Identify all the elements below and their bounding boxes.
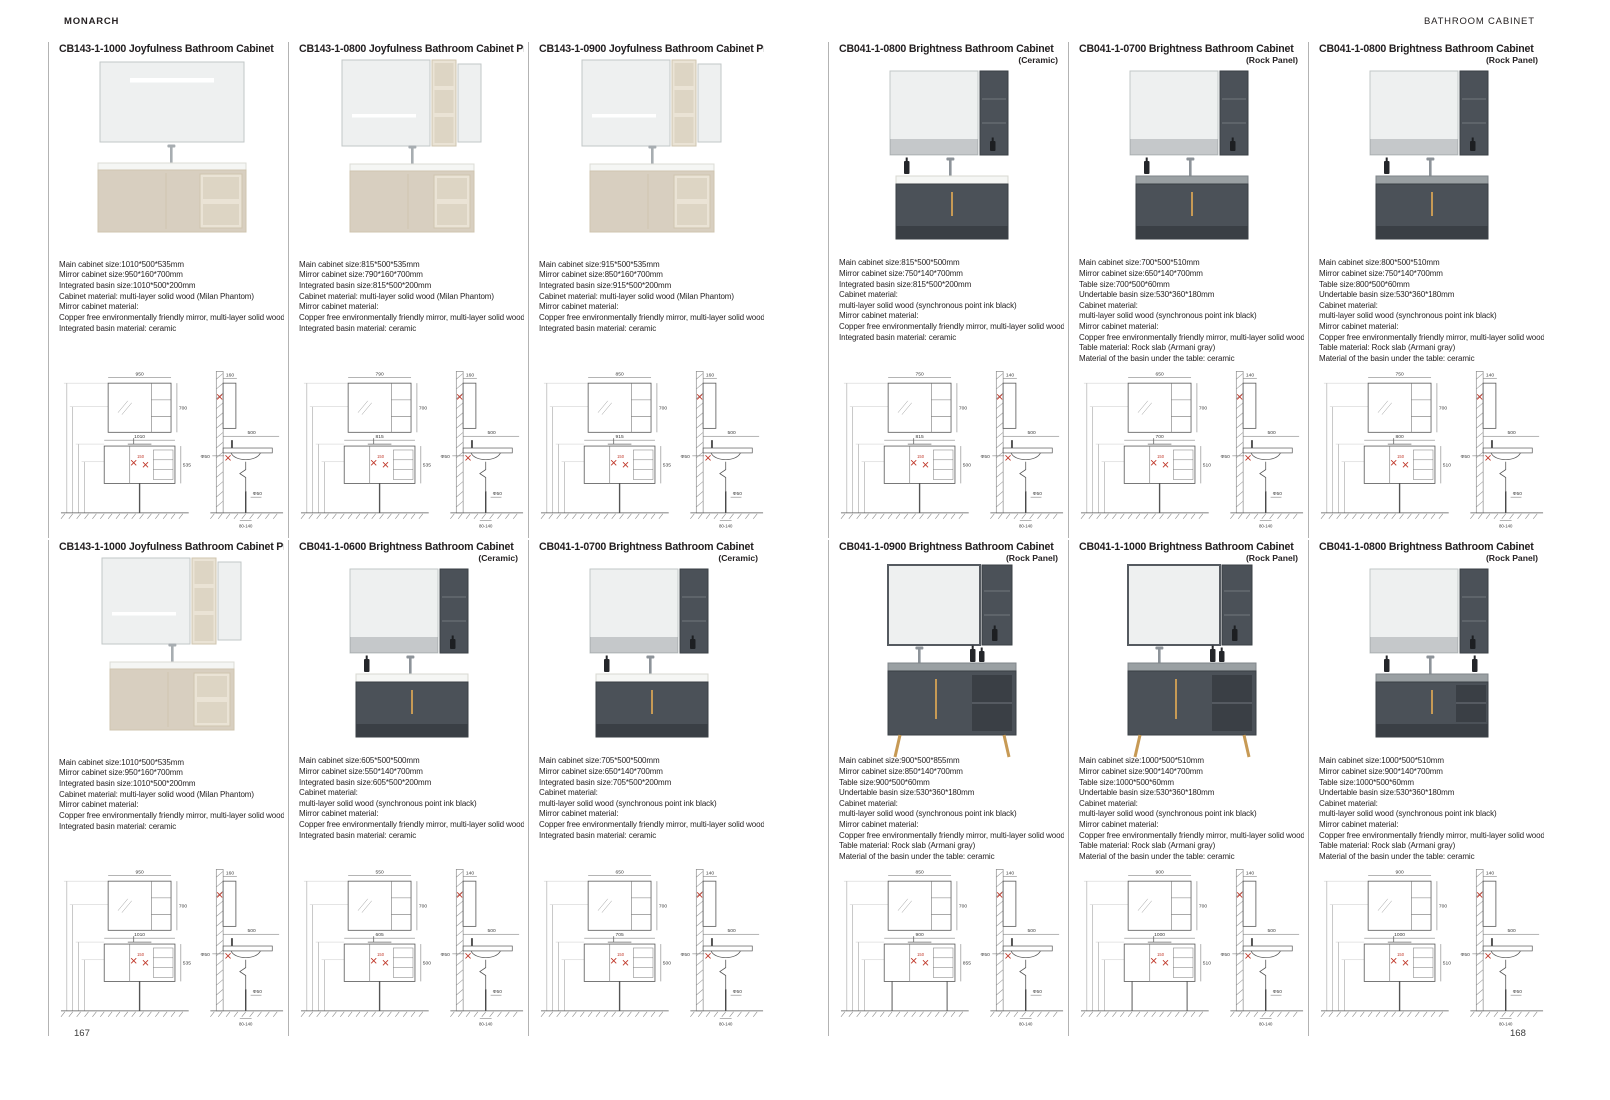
svg-text:500: 500: [728, 928, 736, 934]
svg-text:Φ50: Φ50: [1461, 454, 1471, 460]
spec-line: Main cabinet size:1000*500*510mm: [1319, 756, 1544, 767]
spec-line: Mirror cabinet size:790*160*700mm: [299, 270, 524, 281]
product-photo: [539, 56, 764, 260]
spec-line: Cabinet material:: [1319, 301, 1544, 312]
spec-line: Mirror cabinet size:650*140*700mm: [539, 767, 764, 778]
dimension-drawing: 900 700 1000 510 150 140 500: [1319, 864, 1547, 1030]
svg-text:510: 510: [1443, 463, 1451, 469]
product-card: CB041-1-0700 Brightness Bathroom Cabinet…: [528, 540, 767, 1036]
svg-text:800: 800: [1395, 434, 1403, 440]
product-photo-illustration: [72, 554, 272, 752]
spec-line: Integrated basin size:815*500*200mm: [839, 280, 1064, 291]
svg-text:500: 500: [248, 430, 256, 436]
svg-text:700: 700: [959, 904, 967, 910]
spec-line: Mirror cabinet material:: [839, 820, 1064, 831]
spec-line: multi-layer solid wood (synchronous poin…: [1079, 809, 1304, 820]
spec-line: Mirror cabinet size:650*140*700mm: [1079, 269, 1304, 280]
product-photo-illustration: [552, 563, 752, 761]
product-specs: Main cabinet size:700*500*510mmMirror ca…: [1079, 258, 1304, 364]
technical-drawing: 650 700 700 510 150 140 500: [1079, 366, 1304, 538]
svg-text:700: 700: [179, 904, 187, 910]
svg-text:Φ50: Φ50: [441, 454, 451, 460]
svg-text:790: 790: [375, 371, 383, 377]
spec-line: Cabinet material:: [539, 788, 764, 799]
spec-line: multi-layer solid wood (synchronous poin…: [839, 301, 1064, 312]
product-card: CB041-1-0900 Brightness Bathroom Cabinet…: [828, 540, 1067, 1036]
product-card: CB143-1-1000 Joyfulness Bathroom Cabinet…: [48, 42, 287, 538]
spec-line: Main cabinet size:1010*500*535mm: [59, 260, 284, 271]
svg-text:140: 140: [1006, 870, 1014, 876]
spec-line: Main cabinet size:1010*500*535mm: [59, 758, 284, 769]
svg-text:700: 700: [959, 406, 967, 412]
svg-text:500: 500: [1028, 928, 1036, 934]
dimension-drawing: 950 700 1010 535 150 160 500: [59, 366, 287, 532]
spec-line: Table size:900*500*60mm: [839, 778, 1064, 789]
svg-text:535: 535: [663, 463, 671, 469]
svg-text:510: 510: [1203, 463, 1211, 469]
technical-drawing: 750 700 800 510 150 140 500: [1319, 366, 1544, 538]
dimension-drawing: 750 700 800 510 150 140 500: [1319, 366, 1547, 532]
svg-text:650: 650: [1155, 371, 1163, 377]
product-specs: Main cabinet size:1010*500*535mmMirror c…: [59, 758, 284, 832]
product-specs: Main cabinet size:705*500*500mmMirror ca…: [539, 756, 764, 841]
svg-text:150: 150: [137, 454, 145, 459]
product-specs: Main cabinet size:800*500*510mmMirror ca…: [1319, 258, 1544, 364]
spec-line: multi-layer solid wood (synchronous poin…: [1319, 311, 1544, 322]
spec-line: Mirror cabinet material:: [59, 800, 284, 811]
spec-line: Table material: Rock slab (Armani gray): [1079, 343, 1304, 354]
spec-line: Integrated basin material: ceramic: [539, 831, 764, 842]
product-variant: (Rock Panel): [839, 554, 1064, 563]
svg-text:Φ50: Φ50: [493, 989, 503, 995]
spec-line: Integrated basin material: ceramic: [839, 333, 1064, 344]
svg-text:80-140: 80-140: [479, 524, 493, 529]
spec-line: Mirror cabinet material:: [1079, 820, 1304, 831]
spec-line: Copper free environmentally friendly mir…: [1319, 831, 1544, 842]
product-variant: (Rock Panel): [1079, 56, 1304, 65]
svg-text:700: 700: [1439, 406, 1447, 412]
product-card: CB041-1-0800 Brightness Bathroom Cabinet…: [828, 42, 1067, 538]
product-photo-illustration: [852, 65, 1052, 263]
svg-text:500: 500: [963, 463, 971, 469]
product-variant: (Ceramic): [839, 56, 1064, 65]
spec-line: Copper free environmentally friendly mir…: [299, 820, 524, 831]
dimension-drawing: 790 700 815 535 150 160 500: [299, 366, 527, 532]
dimension-drawing: 650 700 705 500 150 140 500: [539, 864, 767, 1030]
spec-line: Undertable basin size:530*360*180mm: [1079, 788, 1304, 799]
product-card: CB143-1-1000 Joyfulness Bathroom Cabinet…: [48, 540, 287, 1036]
svg-text:815: 815: [915, 434, 923, 440]
svg-text:Φ50: Φ50: [1513, 491, 1523, 497]
spec-line: Mirror cabinet size:950*160*700mm: [59, 270, 284, 281]
spec-line: Integrated basin material: ceramic: [299, 324, 524, 335]
technical-drawing: 850 700 915 535 150 160 500: [539, 366, 764, 538]
spec-line: Copper free environmentally friendly mir…: [539, 820, 764, 831]
svg-text:Φ50: Φ50: [1033, 989, 1043, 995]
spec-line: Integrated basin material: ceramic: [299, 831, 524, 842]
spec-line: Integrated basin material: ceramic: [59, 822, 284, 833]
svg-text:Φ50: Φ50: [201, 952, 211, 958]
spec-line: Undertable basin size:530*360*180mm: [839, 788, 1064, 799]
product-photo: [839, 65, 1064, 258]
product-card: CB041-1-0800 Brightness Bathroom Cabinet…: [1308, 540, 1547, 1036]
svg-text:Φ50: Φ50: [1033, 491, 1043, 497]
technical-drawing: 950 700 1010 535 150 160 500: [59, 366, 284, 538]
product-card: CB143-1-0800 Joyfulness Bathroom Cabinet…: [288, 42, 527, 538]
spec-line: Material of the basin under the table: c…: [1319, 852, 1544, 863]
spec-line: Table material: Rock slab (Armani gray): [839, 841, 1064, 852]
technical-drawing: 650 700 705 500 150 140 500: [539, 864, 764, 1036]
product-photo-illustration: [552, 56, 752, 254]
svg-text:Φ50: Φ50: [1461, 952, 1471, 958]
svg-text:900: 900: [1155, 869, 1163, 875]
svg-text:815: 815: [375, 434, 383, 440]
product-variant: (Rock Panel): [1319, 554, 1544, 563]
svg-text:Φ50: Φ50: [1513, 989, 1523, 995]
spec-line: Cabinet material:: [1079, 301, 1304, 312]
svg-text:140: 140: [1006, 372, 1014, 378]
spec-line: multi-layer solid wood (synchronous poin…: [299, 799, 524, 810]
svg-text:80-140: 80-140: [719, 524, 733, 529]
svg-text:700: 700: [179, 406, 187, 412]
svg-text:850: 850: [915, 869, 923, 875]
spec-line: Main cabinet size:700*500*510mm: [1079, 258, 1304, 269]
spec-line: Main cabinet size:705*500*500mm: [539, 756, 764, 767]
svg-text:150: 150: [1157, 952, 1165, 957]
spec-line: Copper free environmentally friendly mir…: [59, 313, 284, 324]
spec-line: Copper free environmentally friendly mir…: [839, 831, 1064, 842]
spec-line: multi-layer solid wood (synchronous poin…: [539, 799, 764, 810]
spec-line: Mirror cabinet material:: [299, 809, 524, 820]
svg-text:500: 500: [1508, 430, 1516, 436]
spec-line: Cabinet material: multi-layer solid wood…: [299, 292, 524, 303]
svg-text:650: 650: [615, 869, 623, 875]
product-specs: Main cabinet size:1010*500*535mmMirror c…: [59, 260, 284, 334]
svg-text:Φ50: Φ50: [1273, 989, 1283, 995]
spec-line: Integrated basin size:1010*500*200mm: [59, 281, 284, 292]
product-specs: Main cabinet size:815*500*500mmMirror ca…: [839, 258, 1064, 343]
svg-text:80-140: 80-140: [239, 1022, 253, 1027]
svg-text:150: 150: [377, 952, 385, 957]
product-photo: [1319, 65, 1544, 258]
product-variant: (Rock Panel): [1319, 56, 1544, 65]
product-photo: [1079, 563, 1304, 756]
product-photo: [1079, 65, 1304, 258]
spec-line: Main cabinet size:915*500*535mm: [539, 260, 764, 271]
spec-line: Material of the basin under the table: c…: [1079, 354, 1304, 365]
svg-text:700: 700: [659, 406, 667, 412]
spec-line: Copper free environmentally friendly mir…: [1319, 333, 1544, 344]
spec-line: Mirror cabinet material:: [1319, 820, 1544, 831]
spec-line: Mirror cabinet size:950*160*700mm: [59, 768, 284, 779]
product-photo-illustration: [312, 56, 512, 254]
spec-line: Cabinet material:: [299, 788, 524, 799]
svg-text:550: 550: [375, 869, 383, 875]
svg-text:Φ50: Φ50: [681, 952, 691, 958]
product-specs: Main cabinet size:915*500*535mmMirror ca…: [539, 260, 764, 334]
spec-line: Cabinet material:: [839, 290, 1064, 301]
product-photo: [299, 563, 524, 756]
spec-line: Main cabinet size:815*500*500mm: [839, 258, 1064, 269]
svg-text:140: 140: [466, 870, 474, 876]
brand-title: MONARCH: [64, 16, 119, 27]
product-photo: [59, 56, 284, 260]
product-title: CB143-1-0900 Joyfulness Bathroom Cabinet…: [539, 44, 764, 56]
svg-text:Φ50: Φ50: [253, 989, 263, 995]
spec-line: Cabinet material:: [839, 799, 1064, 810]
dimension-drawing: 650 700 700 510 150 140 500: [1079, 366, 1307, 532]
svg-text:80-140: 80-140: [239, 524, 253, 529]
product-specs: Main cabinet size:1000*500*510mmMirror c…: [1079, 756, 1304, 862]
dimension-drawing: 750 700 815 500 150 140 500: [839, 366, 1067, 532]
svg-text:500: 500: [1268, 430, 1276, 436]
svg-text:700: 700: [1155, 434, 1163, 440]
spec-line: multi-layer solid wood (synchronous poin…: [1319, 809, 1544, 820]
product-photo-illustration: [1332, 65, 1532, 263]
svg-text:150: 150: [137, 952, 145, 957]
svg-text:150: 150: [1157, 454, 1165, 459]
product-card: CB041-1-0600 Brightness Bathroom Cabinet…: [288, 540, 527, 1036]
svg-text:510: 510: [1203, 961, 1211, 967]
technical-drawing: 550 700 605 500 150 140 500: [299, 864, 524, 1036]
svg-text:140: 140: [1246, 372, 1254, 378]
product-title: CB143-1-0800 Joyfulness Bathroom Cabinet…: [299, 44, 524, 56]
product-variant: (Ceramic): [539, 554, 764, 563]
spec-line: Mirror cabinet size:750*140*700mm: [1319, 269, 1544, 280]
spec-line: Copper free environmentally friendly mir…: [59, 811, 284, 822]
spec-line: Undertable basin size:530*360*180mm: [1319, 290, 1544, 301]
svg-text:Φ50: Φ50: [681, 454, 691, 460]
svg-text:150: 150: [377, 454, 385, 459]
svg-text:80-140: 80-140: [1499, 524, 1513, 529]
svg-text:915: 915: [615, 434, 623, 440]
spec-line: Material of the basin under the table: c…: [839, 852, 1064, 863]
spec-line: Mirror cabinet material:: [59, 302, 284, 313]
spec-line: Table size:800*500*60mm: [1319, 280, 1544, 291]
spec-line: Mirror cabinet material:: [839, 311, 1064, 322]
product-photo-illustration: [852, 563, 1052, 761]
product-photo-illustration: [1092, 65, 1292, 263]
svg-text:500: 500: [728, 430, 736, 436]
svg-text:500: 500: [423, 961, 431, 967]
product-card: CB041-1-1000 Brightness Bathroom Cabinet…: [1068, 540, 1307, 1036]
spec-line: Undertable basin size:530*360*180mm: [1319, 788, 1544, 799]
spec-line: Material of the basin under the table: c…: [1079, 852, 1304, 863]
spec-line: Undertable basin size:530*360*180mm: [1079, 290, 1304, 301]
spec-line: multi-layer solid wood (synchronous poin…: [1079, 311, 1304, 322]
spec-line: Material of the basin under the table: c…: [1319, 354, 1544, 365]
section-title: BATHROOM CABINET: [1424, 16, 1535, 27]
svg-text:Φ50: Φ50: [1273, 491, 1283, 497]
svg-text:Φ50: Φ50: [733, 491, 743, 497]
product-title: CB143-1-1000 Joyfulness Bathroom Cabinet…: [59, 542, 284, 554]
dimension-drawing: 850 700 900 855 150 140 500: [839, 864, 1067, 1030]
svg-text:700: 700: [419, 904, 427, 910]
spec-line: Integrated basin material: ceramic: [539, 324, 764, 335]
svg-text:950: 950: [135, 371, 143, 377]
product-card: CB143-1-0900 Joyfulness Bathroom Cabinet…: [528, 42, 767, 538]
spec-line: Mirror cabinet size:550*140*700mm: [299, 767, 524, 778]
svg-text:80-140: 80-140: [1259, 524, 1273, 529]
product-specs: Main cabinet size:900*500*855mmMirror ca…: [839, 756, 1064, 862]
spec-line: Mirror cabinet material:: [1319, 322, 1544, 333]
svg-text:80-140: 80-140: [1019, 524, 1033, 529]
spec-line: Main cabinet size:900*500*855mm: [839, 756, 1064, 767]
technical-drawing: 950 700 1010 535 150 160 500: [59, 864, 284, 1036]
svg-text:900: 900: [915, 932, 923, 938]
dimension-drawing: 550 700 605 500 150 140 500: [299, 864, 527, 1030]
svg-text:700: 700: [659, 904, 667, 910]
svg-text:150: 150: [917, 952, 925, 957]
svg-text:950: 950: [135, 869, 143, 875]
product-title: CB143-1-1000 Joyfulness Bathroom Cabinet: [59, 44, 284, 56]
svg-text:160: 160: [706, 372, 714, 378]
svg-text:510: 510: [1443, 961, 1451, 967]
svg-text:160: 160: [226, 372, 234, 378]
svg-text:Φ50: Φ50: [493, 491, 503, 497]
product-variant: (Ceramic): [299, 554, 524, 563]
svg-text:Φ50: Φ50: [981, 454, 991, 460]
svg-text:500: 500: [1268, 928, 1276, 934]
svg-text:535: 535: [183, 463, 191, 469]
spec-line: Main cabinet size:605*500*500mm: [299, 756, 524, 767]
svg-text:80-140: 80-140: [1499, 1022, 1513, 1027]
product-photo: [299, 56, 524, 260]
svg-text:700: 700: [419, 406, 427, 412]
svg-text:Φ50: Φ50: [733, 989, 743, 995]
spec-line: Cabinet material: multi-layer solid wood…: [59, 292, 284, 303]
spec-line: Main cabinet size:815*500*535mm: [299, 260, 524, 271]
spec-line: Mirror cabinet size:900*140*700mm: [1079, 767, 1304, 778]
spec-line: Copper free environmentally friendly mir…: [839, 322, 1064, 333]
spec-line: Mirror cabinet material:: [539, 809, 764, 820]
svg-text:150: 150: [617, 454, 625, 459]
dimension-drawing: 900 700 1000 510 150 140 500: [1079, 864, 1307, 1030]
svg-text:700: 700: [1199, 406, 1207, 412]
svg-text:705: 705: [615, 932, 623, 938]
svg-text:1000: 1000: [1394, 932, 1405, 938]
svg-text:Φ50: Φ50: [441, 952, 451, 958]
spec-line: Copper free environmentally friendly mir…: [1079, 831, 1304, 842]
spec-line: Table size:1000*500*60mm: [1079, 778, 1304, 789]
svg-text:1010: 1010: [134, 932, 145, 938]
spec-line: Main cabinet size:1000*500*510mm: [1079, 756, 1304, 767]
svg-text:700: 700: [1439, 904, 1447, 910]
spec-line: Cabinet material: multi-layer solid wood…: [59, 790, 284, 801]
technical-drawing: 900 700 1000 510 150 140 500: [1079, 864, 1304, 1036]
svg-text:1000: 1000: [1154, 932, 1165, 938]
svg-text:500: 500: [1028, 430, 1036, 436]
spec-line: Mirror cabinet size:850*160*700mm: [539, 270, 764, 281]
spec-line: Mirror cabinet material:: [299, 302, 524, 313]
spec-line: Integrated basin size:605*500*200mm: [299, 778, 524, 789]
product-card: CB041-1-0800 Brightness Bathroom Cabinet…: [1308, 42, 1547, 538]
product-photo-illustration: [1092, 563, 1292, 761]
svg-text:140: 140: [706, 870, 714, 876]
spec-line: Mirror cabinet material:: [539, 302, 764, 313]
spec-line: Cabinet material: multi-layer solid wood…: [539, 292, 764, 303]
svg-text:750: 750: [1395, 371, 1403, 377]
product-photo-illustration: [72, 56, 272, 254]
spec-line: Mirror cabinet size:750*140*700mm: [839, 269, 1064, 280]
svg-text:140: 140: [1246, 870, 1254, 876]
svg-text:140: 140: [1486, 870, 1494, 876]
svg-text:150: 150: [1397, 952, 1405, 957]
spec-line: Integrated basin size:705*500*200mm: [539, 778, 764, 789]
spec-line: Table material: Rock slab (Armani gray): [1319, 343, 1544, 354]
spec-line: Cabinet material:: [1319, 799, 1544, 810]
spec-line: Cabinet material:: [1079, 799, 1304, 810]
svg-text:500: 500: [488, 430, 496, 436]
svg-text:80-140: 80-140: [479, 1022, 493, 1027]
spec-line: multi-layer solid wood (synchronous poin…: [839, 809, 1064, 820]
spec-line: Copper free environmentally friendly mir…: [539, 313, 764, 324]
svg-text:535: 535: [423, 463, 431, 469]
dimension-drawing: 850 700 915 535 150 160 500: [539, 366, 767, 532]
svg-text:Φ50: Φ50: [981, 952, 991, 958]
svg-text:850: 850: [615, 371, 623, 377]
spec-line: Table material: Rock slab (Armani gray): [1079, 841, 1304, 852]
product-variant: (Rock Panel): [1079, 554, 1304, 563]
svg-text:Φ50: Φ50: [1221, 454, 1231, 460]
svg-text:855: 855: [963, 961, 971, 967]
spec-line: Table size:700*500*60mm: [1079, 280, 1304, 291]
svg-text:500: 500: [1508, 928, 1516, 934]
product-card: CB041-1-0700 Brightness Bathroom Cabinet…: [1068, 42, 1307, 538]
svg-text:160: 160: [226, 870, 234, 876]
spec-line: Copper free environmentally friendly mir…: [299, 313, 524, 324]
svg-text:750: 750: [915, 371, 923, 377]
dimension-drawing: 950 700 1010 535 150 160 500: [59, 864, 287, 1030]
product-specs: Main cabinet size:815*500*535mmMirror ca…: [299, 260, 524, 334]
spec-line: Table size:1000*500*60mm: [1319, 778, 1544, 789]
product-specs: Main cabinet size:605*500*500mmMirror ca…: [299, 756, 524, 841]
spec-line: Copper free environmentally friendly mir…: [1079, 333, 1304, 344]
spec-line: Integrated basin size:915*500*200mm: [539, 281, 764, 292]
product-photo-illustration: [1332, 563, 1532, 761]
svg-text:Φ50: Φ50: [1221, 952, 1231, 958]
svg-text:150: 150: [917, 454, 925, 459]
spec-line: Main cabinet size:800*500*510mm: [1319, 258, 1544, 269]
svg-text:80-140: 80-140: [1259, 1022, 1273, 1027]
technical-drawing: 850 700 900 855 150 140 500: [839, 864, 1064, 1036]
spec-line: Mirror cabinet size:850*140*700mm: [839, 767, 1064, 778]
spec-line: Mirror cabinet material:: [1079, 322, 1304, 333]
svg-text:Φ50: Φ50: [253, 491, 263, 497]
product-photo: [59, 554, 284, 758]
svg-text:500: 500: [488, 928, 496, 934]
svg-text:500: 500: [663, 961, 671, 967]
product-photo: [1319, 563, 1544, 756]
svg-text:900: 900: [1395, 869, 1403, 875]
page-number-right: 168: [1510, 1028, 1526, 1039]
page-number-left: 167: [74, 1028, 90, 1039]
spec-line: Mirror cabinet size:900*140*700mm: [1319, 767, 1544, 778]
svg-text:1010: 1010: [134, 434, 145, 440]
svg-text:160: 160: [466, 372, 474, 378]
svg-text:150: 150: [1397, 454, 1405, 459]
svg-text:700: 700: [1199, 904, 1207, 910]
svg-text:140: 140: [1486, 372, 1494, 378]
spec-line: Integrated basin material: ceramic: [59, 324, 284, 335]
svg-text:80-140: 80-140: [719, 1022, 733, 1027]
svg-text:500: 500: [248, 928, 256, 934]
product-photo-illustration: [312, 563, 512, 761]
technical-drawing: 750 700 815 500 150 140 500: [839, 366, 1064, 538]
technical-drawing: 790 700 815 535 150 160 500: [299, 366, 524, 538]
svg-text:80-140: 80-140: [1019, 1022, 1033, 1027]
svg-text:535: 535: [183, 961, 191, 967]
